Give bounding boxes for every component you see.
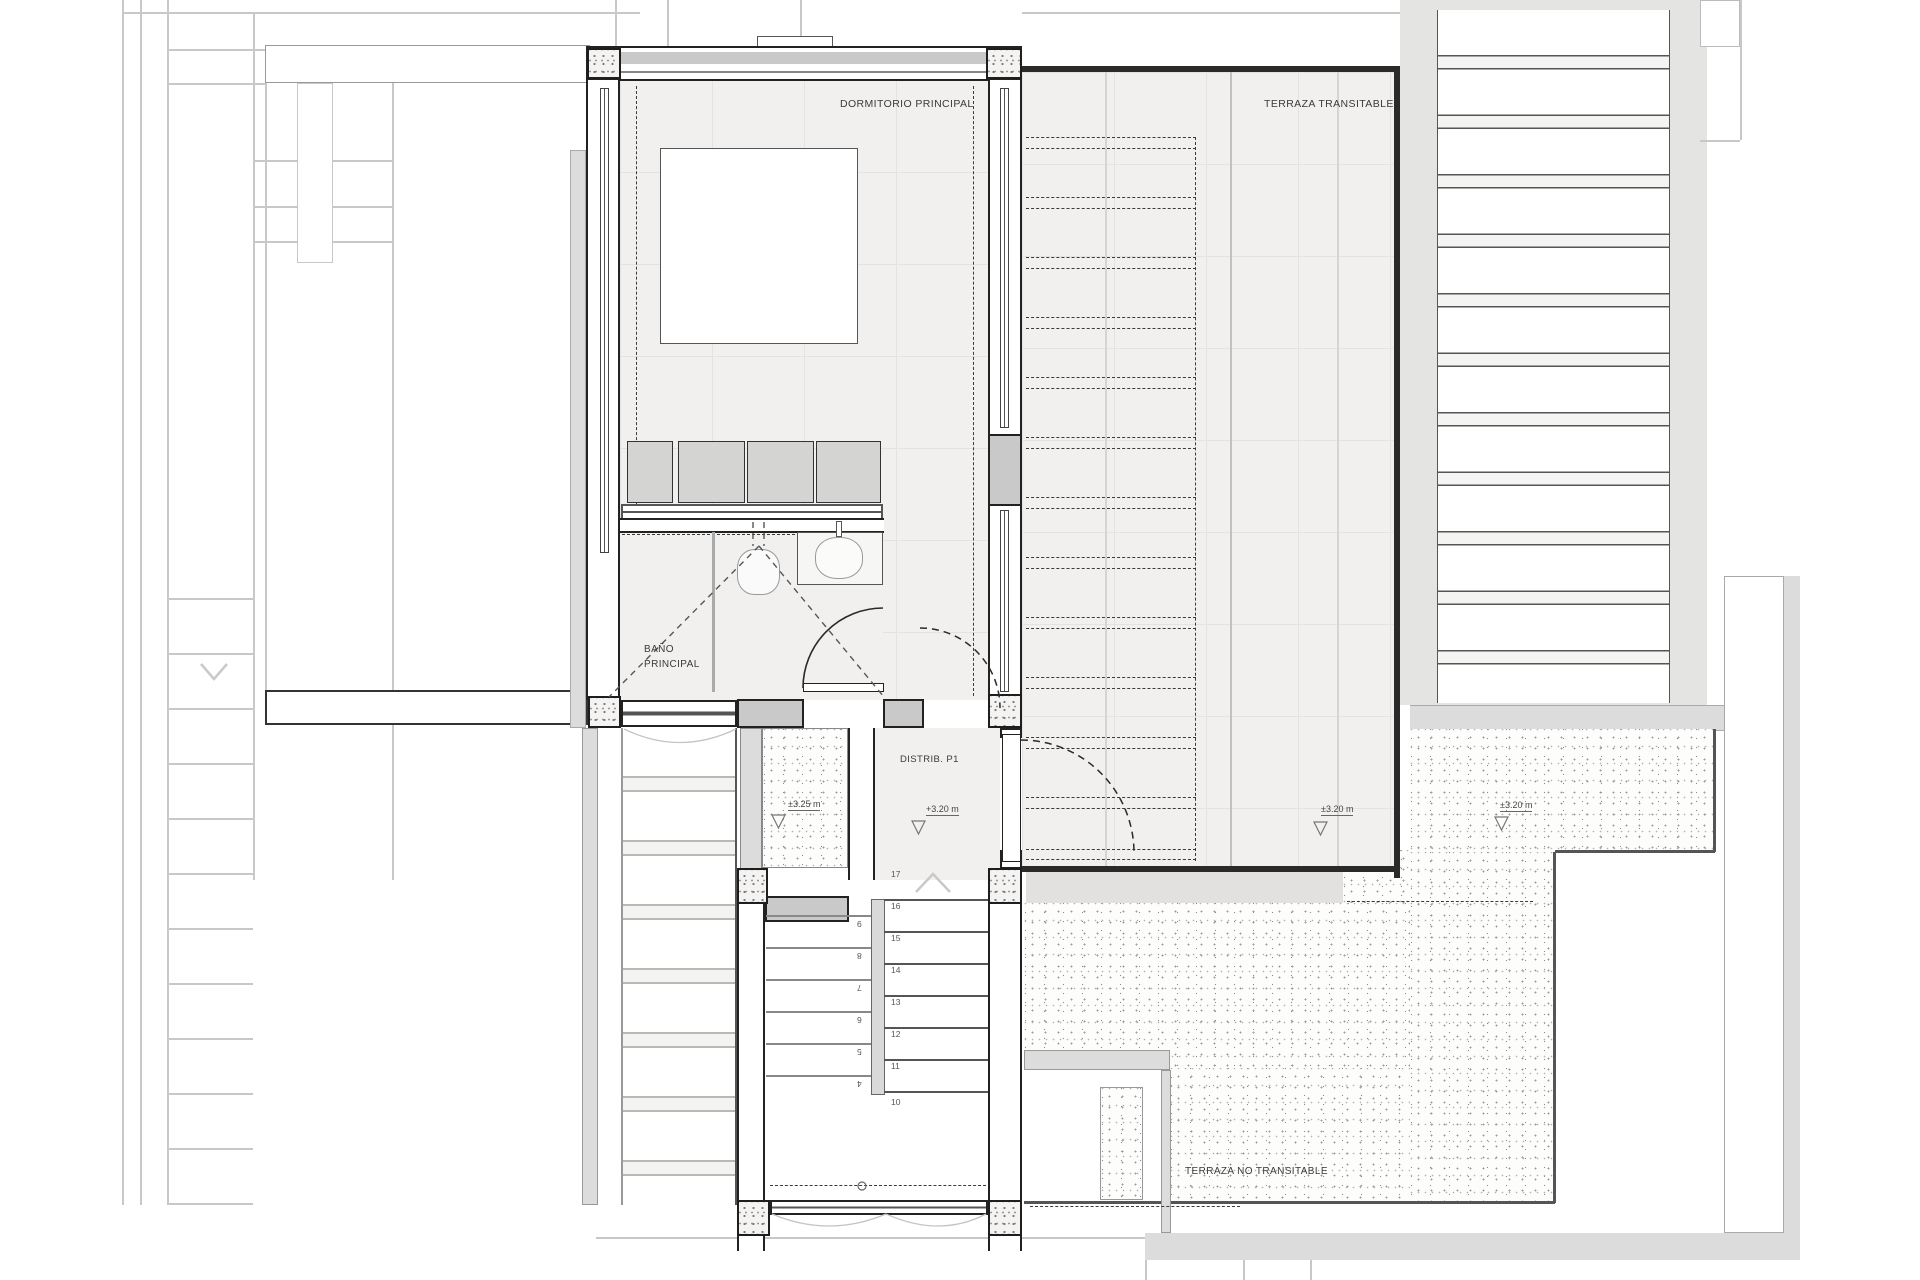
terrace-wall <box>1020 66 1400 72</box>
east-wall-pier <box>988 434 1022 506</box>
stair-tread <box>766 915 871 917</box>
wall-line <box>592 71 1016 73</box>
stair-step-number: 6 <box>857 1015 862 1025</box>
overhang-dashed <box>1026 317 1196 329</box>
terrace-wall <box>1394 66 1400 878</box>
stair-step-number: 15 <box>891 933 900 943</box>
overhang-dashed <box>1026 197 1196 209</box>
stair-tread <box>766 947 871 949</box>
pier <box>737 1200 770 1236</box>
north-wall <box>586 46 1022 81</box>
overhang-dashed-edge <box>1195 137 1197 861</box>
context-line <box>1145 1260 1147 1280</box>
entry-window <box>770 1200 988 1215</box>
terrace-edge <box>1713 729 1716 852</box>
stair-void-gravel <box>762 728 848 868</box>
wardrobe-module <box>678 441 745 503</box>
stair-step-number: 10 <box>891 1097 900 1107</box>
level-annotation: ±3.20 m <box>1321 804 1353 816</box>
pier <box>988 868 1022 904</box>
floor-plan-canvas: 17 16 15 14 13 12 11 10 9 8 7 6 5 4 DORM… <box>0 0 1920 1280</box>
parapet-band <box>1784 576 1800 1260</box>
wardrobe-module <box>816 441 881 503</box>
tile-joint <box>1230 72 1232 866</box>
context-balcony-band <box>265 45 590 83</box>
context-line <box>596 1237 1146 1239</box>
stair-step-number: 17 <box>891 869 900 879</box>
context-column <box>297 83 333 263</box>
wardrobe-module <box>627 441 673 503</box>
curtain-swag <box>772 1214 986 1226</box>
ceiling-edge-dashed <box>973 86 975 696</box>
context-line <box>1740 0 1742 140</box>
wall-insulation <box>592 52 1016 64</box>
roof-edge-strip <box>570 150 586 728</box>
stair-stringer <box>871 899 885 1095</box>
walkway-band <box>1724 576 1784 1233</box>
room-lower-terrace-label: TERRAZA NO TRANSITABLE <box>1185 1166 1328 1177</box>
room-bathroom-label-line1: BAÑO <box>644 642 700 657</box>
gravel-terrace <box>1410 852 1555 1203</box>
context-line <box>167 83 265 85</box>
louver-slats <box>1437 10 1670 703</box>
context-line <box>253 12 255 880</box>
room-bathroom-label-line2: PRINCIPAL <box>644 657 700 672</box>
shower-partition <box>712 532 715 692</box>
notch-wall <box>1161 1070 1171 1233</box>
wall-chunk <box>737 699 804 728</box>
west-window <box>600 88 609 553</box>
stair-step-number: 4 <box>857 1079 862 1089</box>
lower-floor-stair <box>167 545 253 1205</box>
east-window <box>1000 510 1009 692</box>
overhang-dashed <box>1026 617 1196 629</box>
room-distributor-label: DISTRIB. P1 <box>900 754 959 765</box>
stair-top-wall <box>765 896 849 922</box>
stair-step-number: 11 <box>891 1061 900 1071</box>
stair-tread <box>766 1075 871 1077</box>
east-window <box>1000 88 1009 428</box>
pier <box>587 48 621 79</box>
overhang-dashed <box>1026 377 1196 389</box>
room-terrace-label: TERRAZA TRANSITABLE <box>1264 98 1394 110</box>
stair-east-wall <box>988 868 1022 1251</box>
section-line-dashed <box>770 1185 986 1187</box>
roof-edge-strip <box>582 728 598 1205</box>
gravel-terrace <box>1170 1068 1410 1203</box>
pier <box>988 694 1022 728</box>
pier <box>737 868 768 904</box>
stair-step-number: 13 <box>891 997 900 1007</box>
void-wall <box>740 728 762 870</box>
bathroom-door-leaf <box>803 683 884 692</box>
room-bathroom-label: BAÑO PRINCIPAL <box>644 642 700 672</box>
stair-step-number: 14 <box>891 965 900 975</box>
context-line <box>1310 1260 1312 1280</box>
overhang-dashed <box>1026 737 1196 749</box>
parapet-band <box>265 690 588 725</box>
hidden-edge-dashed <box>1030 1206 1240 1208</box>
stair-step-number: 9 <box>857 919 862 929</box>
stair-tread <box>766 1043 871 1045</box>
gravel-strip <box>1100 1087 1143 1200</box>
context-line <box>667 0 669 46</box>
stair-step-number: 5 <box>857 1047 862 1057</box>
overhang-dashed <box>1026 497 1196 509</box>
context-line <box>615 0 617 46</box>
stair-tread <box>766 979 871 981</box>
washbasin <box>815 537 863 579</box>
notch-wall <box>1024 1050 1170 1070</box>
overhang-dashed <box>1026 849 1196 860</box>
stair-tread <box>766 1011 871 1013</box>
wardrobe-module <box>747 441 814 503</box>
overhang-dashed <box>1026 677 1196 689</box>
bathroom-window <box>621 700 737 727</box>
distributor-west-wall <box>848 728 875 880</box>
context-line <box>265 45 267 690</box>
tile-joint <box>1337 72 1339 866</box>
overhang-dashed <box>1026 257 1196 269</box>
context-line <box>1243 1260 1245 1280</box>
stair-west-wall <box>737 868 765 1251</box>
context-line <box>392 49 394 880</box>
toilet <box>737 549 780 595</box>
context-line <box>800 0 802 36</box>
gravel-terrace <box>1024 903 1410 1068</box>
context-line <box>122 0 124 1205</box>
level-annotation: ±3.20 m <box>1500 800 1532 812</box>
level-annotation: +3.20 m <box>926 804 959 816</box>
overhang-dashed <box>1026 137 1196 149</box>
terrace-edge <box>1553 852 1556 1203</box>
stair-step-number: 16 <box>891 901 900 911</box>
context-line <box>167 49 265 51</box>
bed <box>660 148 858 344</box>
hidden-edge-dashed <box>1347 901 1533 903</box>
gravel-terrace <box>1410 729 1715 852</box>
pier <box>988 1200 1022 1236</box>
terrace-edge <box>1555 850 1715 853</box>
parapet-band <box>1145 1233 1800 1260</box>
pier <box>588 696 621 728</box>
level-annotation: ±3.25 m <box>788 799 820 811</box>
stair-tread <box>884 1091 988 1093</box>
overhang-dashed <box>1026 557 1196 569</box>
overhang-dashed <box>1026 797 1196 809</box>
stair-step-number: 12 <box>891 1029 900 1039</box>
context-line <box>1022 12 1400 14</box>
stair-step-number: 7 <box>857 983 862 993</box>
wall-chunk <box>883 699 924 728</box>
context-line <box>122 12 640 14</box>
exterior-stair-bands <box>621 728 737 1205</box>
context-line <box>1700 140 1740 142</box>
terrace-parapet <box>1026 872 1343 903</box>
faucet <box>836 521 842 537</box>
overhang-dashed <box>1026 437 1196 449</box>
context-line <box>140 0 142 1205</box>
terrace-edge <box>1024 1201 1555 1204</box>
context-box <box>1700 0 1740 47</box>
terrace-door-leaf <box>1002 734 1021 862</box>
room-bedroom-label: DORMITORIO PRINCIPAL <box>840 98 974 110</box>
pier <box>986 48 1022 79</box>
stair-step-number: 8 <box>857 951 862 961</box>
